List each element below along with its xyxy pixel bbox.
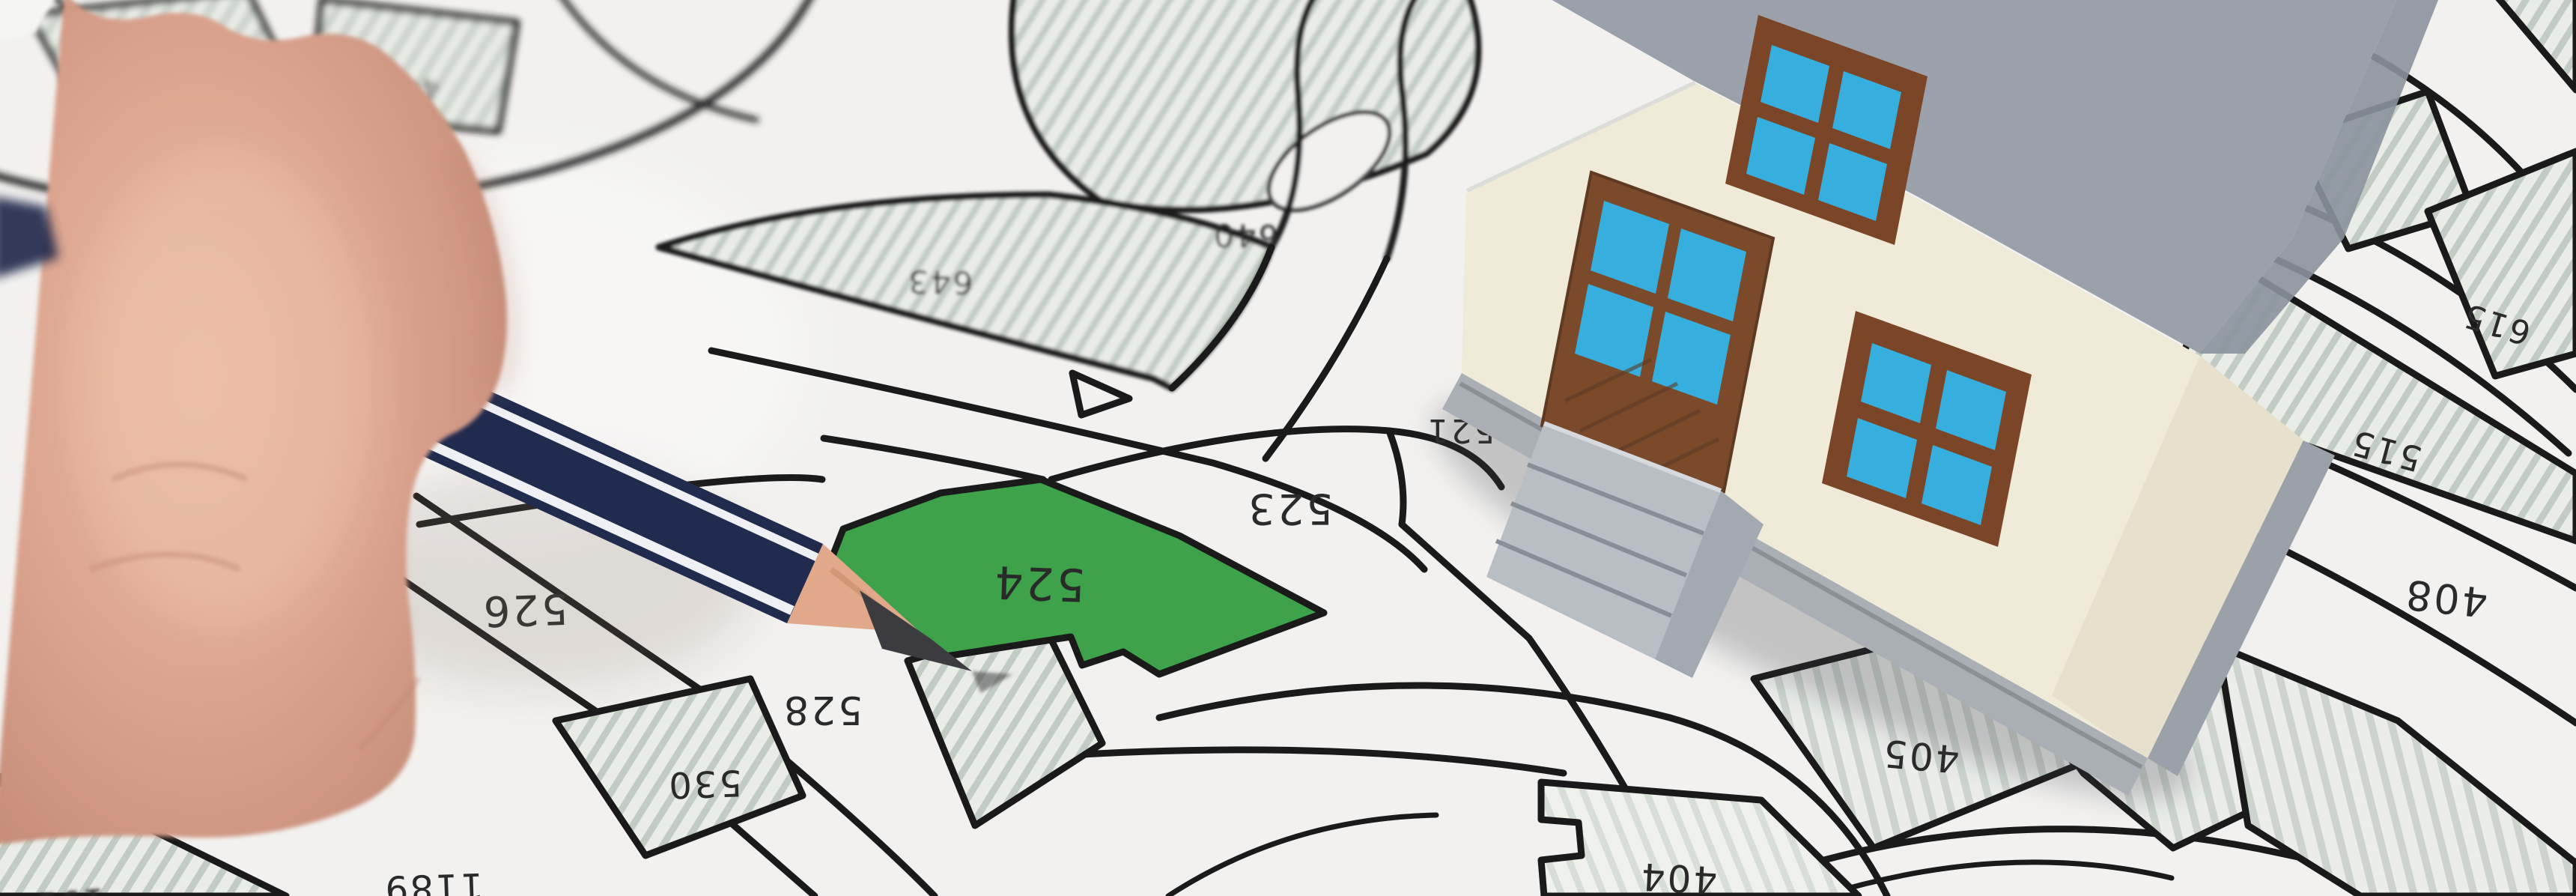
parcel-label-524: 524 (991, 555, 1086, 611)
photo-cadastral-map-scene: 848 448 643 640 (0, 0, 2576, 896)
parcel-label-643: 643 (906, 263, 973, 301)
parcel-label-1189: 1189 (383, 865, 484, 896)
parcel-label-404: 404 (1638, 854, 1718, 896)
parcel-label-528: 528 (782, 687, 863, 732)
parcel-label-523: 523 (1246, 484, 1333, 533)
scene-canvas: 848 448 643 640 (0, 0, 2576, 896)
parcel-label-530: 530 (666, 761, 743, 805)
parcel-label-408: 408 (2402, 570, 2490, 626)
